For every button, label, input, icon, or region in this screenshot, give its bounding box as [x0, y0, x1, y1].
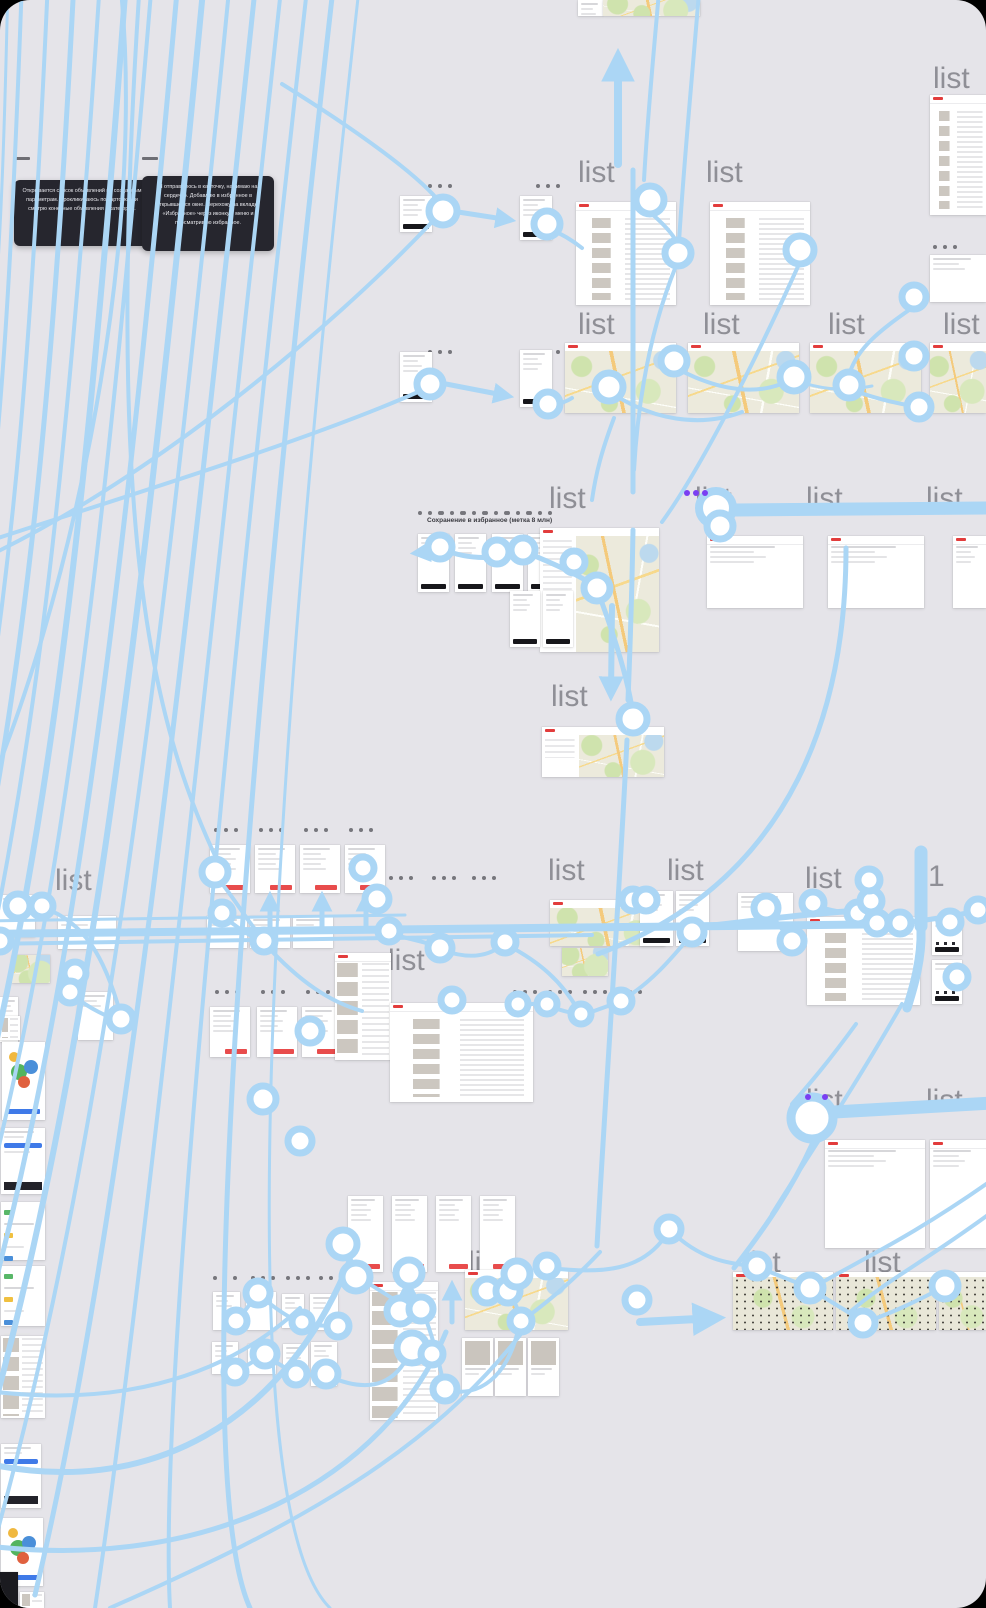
screen-card[interactable]	[250, 916, 290, 948]
screen-mobile-filter[interactable]	[210, 845, 250, 893]
screen-desktop-map[interactable]	[688, 343, 799, 413]
screen-map[interactable]	[603, 0, 700, 16]
screen-dark-thumb[interactable]	[0, 1572, 18, 1608]
flow-line	[670, 1230, 754, 1266]
ellipsis-marker	[389, 876, 413, 880]
flow-line	[549, 1006, 579, 1014]
flow-label[interactable]: list	[706, 158, 743, 188]
screen-mobile-mini[interactable]	[510, 591, 540, 647]
ellipsis-marker	[214, 828, 238, 832]
screen-form[interactable]	[1, 1444, 41, 1508]
screen-card[interactable]	[283, 1344, 308, 1374]
screen-desktop-item[interactable]	[953, 536, 986, 608]
screen-mobile-mini[interactable]	[520, 350, 552, 407]
ellipsis-marker	[583, 990, 607, 994]
flow-label[interactable]: 1	[928, 862, 945, 892]
screen-mobile-filter[interactable]	[392, 1196, 427, 1272]
screen-mobile-mini[interactable]	[492, 534, 523, 592]
screen-mobile-mini[interactable]	[418, 534, 449, 592]
flow-line	[592, 418, 614, 500]
screen-mobile-mini[interactable]	[400, 196, 432, 232]
favorites-caption[interactable]: Сохранение в избранное (метка 8 млн)	[427, 518, 552, 525]
flow-line	[644, 0, 660, 180]
flow-label[interactable]: list	[667, 856, 704, 886]
screen-mobile-listing[interactable]	[335, 953, 391, 1060]
ellipsis-marker	[213, 1276, 237, 1280]
flow-node	[902, 285, 926, 309]
ellipsis-marker	[251, 1276, 275, 1280]
ellipsis-marker	[618, 990, 642, 994]
screen-mobile-mini[interactable]	[676, 891, 709, 946]
flow-node	[571, 1004, 591, 1024]
screen-desktop-listing[interactable]	[710, 202, 810, 305]
ellipsis-marker	[349, 828, 373, 832]
screen-desktop-map[interactable]	[810, 343, 921, 413]
screen-desktop-listing[interactable]	[576, 202, 676, 305]
flow-label[interactable]: list	[933, 64, 970, 94]
ellipsis-marker	[306, 990, 330, 994]
screen-desktop-map[interactable]	[930, 343, 986, 413]
ellipsis-marker	[286, 1276, 310, 1280]
comment-dot[interactable]	[805, 1094, 811, 1100]
flow-node	[858, 869, 880, 891]
screen-card[interactable]	[282, 1294, 304, 1328]
flow-label[interactable]: list	[388, 946, 425, 976]
screen-desktop-map[interactable]	[565, 343, 676, 413]
screen-photo-card[interactable]	[495, 1338, 526, 1396]
screen-desktop-item[interactable]	[825, 1140, 925, 1248]
flow-line	[0, 0, 74, 910]
frame-dash-marker	[142, 157, 158, 160]
flow-node	[378, 920, 400, 942]
screen-card[interactable]	[58, 916, 116, 949]
flow-node	[967, 899, 986, 921]
flow-line	[0, 0, 22, 640]
screen-mobile-dialog[interactable]	[932, 917, 962, 955]
screen-list-colored[interactable]	[1, 1266, 45, 1326]
screen-mobile-filter[interactable]	[300, 845, 340, 893]
screen-photo-card[interactable]	[528, 1338, 559, 1396]
flow-line	[0, 0, 8, 420]
flow-label[interactable]: list	[578, 310, 615, 340]
screen-card[interactable]	[578, 0, 603, 16]
flow-node	[494, 931, 516, 953]
screen-card[interactable]	[0, 895, 35, 937]
flow-line	[679, 0, 700, 242]
flow-line	[71, 976, 76, 990]
flow-node	[802, 892, 824, 914]
ellipsis-marker	[536, 184, 560, 188]
flow-label[interactable]: list	[926, 484, 963, 514]
screen-mobile-mini[interactable]	[543, 591, 573, 647]
screen-mobile-mini[interactable]	[520, 196, 552, 240]
flow-label[interactable]: list	[703, 310, 740, 340]
screen-mobile-mini[interactable]	[400, 352, 432, 402]
figma-prototype-canvas[interactable]: listlistlistlistlistlistlistlistlistlist…	[0, 0, 986, 1608]
screen-mobile-filter[interactable]	[255, 845, 295, 893]
ellipsis-marker	[215, 990, 239, 994]
screen-mobile-filter[interactable]	[210, 1007, 250, 1057]
flow-node	[657, 1217, 681, 1241]
flow-label[interactable]: list	[926, 1086, 963, 1116]
screen-card[interactable]	[310, 1294, 338, 1330]
flow-label[interactable]: list	[695, 484, 732, 514]
flow-node	[428, 936, 452, 960]
flow-line	[127, 0, 218, 862]
ellipsis-marker	[506, 511, 530, 515]
screen-card[interactable]	[78, 992, 113, 1040]
ellipsis-marker	[418, 511, 442, 515]
comment-dot[interactable]	[822, 1094, 828, 1100]
screen-card[interactable]	[212, 1342, 238, 1374]
ellipsis-marker	[472, 876, 496, 880]
screen-mobile-dialog[interactable]	[932, 960, 962, 1004]
screen-map[interactable]	[562, 948, 608, 976]
screen-photo-card[interactable]	[462, 1338, 493, 1396]
annotation-note[interactable]: Я отправляюсь в карточку, нажимаю на сер…	[142, 176, 274, 251]
flow-line	[550, 1232, 668, 1271]
flow-label[interactable]: list	[806, 1086, 843, 1116]
frame-dash-marker	[14, 157, 30, 160]
flow-line	[0, 392, 418, 544]
ellipsis-marker	[513, 990, 537, 994]
comment-dot[interactable]	[693, 490, 699, 496]
screen-mobile-mini[interactable]	[640, 891, 673, 946]
comment-dot[interactable]	[684, 490, 690, 496]
screen-mascot[interactable]	[2, 1042, 45, 1120]
flow-line	[583, 1002, 619, 1015]
annotation-note[interactable]: Открывается список объявлений по созданн…	[14, 180, 150, 246]
screen-desktop-item[interactable]	[930, 1140, 986, 1248]
screen-mobile-listing[interactable]	[370, 1282, 438, 1420]
screen-card[interactable]	[293, 916, 333, 948]
flow-line	[446, 384, 508, 396]
screen-dense-map[interactable]	[836, 1272, 936, 1330]
ellipsis-marker	[304, 828, 328, 832]
screen-mobile-filter[interactable]	[348, 1196, 383, 1272]
screen-card[interactable]	[311, 1342, 337, 1386]
ellipsis-marker	[259, 828, 283, 832]
flow-label[interactable]: list	[549, 484, 586, 514]
flow-node	[625, 1288, 649, 1312]
screen-desktop-map[interactable]	[465, 1270, 568, 1330]
screen-photo-grid[interactable]	[1, 1336, 45, 1418]
flow-line	[834, 1103, 986, 1112]
screen-list-colored[interactable]	[1, 1202, 45, 1260]
flow-node	[288, 1129, 312, 1153]
flow-line	[0, 0, 48, 790]
screen-mobile-mini[interactable]	[455, 534, 486, 592]
ellipsis-marker	[484, 511, 508, 515]
screen-desktop-listing[interactable]	[930, 95, 986, 215]
flow-label[interactable]: list	[806, 484, 843, 514]
flow-label[interactable]: list	[551, 682, 588, 712]
screen-map[interactable]	[12, 955, 50, 983]
flow-node	[537, 994, 557, 1014]
screen-card[interactable]	[248, 1344, 276, 1374]
screen-dense-map[interactable]	[939, 1272, 986, 1330]
screen-mobile-filter[interactable]	[480, 1196, 515, 1272]
screen-form[interactable]	[1, 1128, 45, 1194]
ellipsis-marker	[319, 1276, 343, 1280]
flow-label[interactable]: list	[55, 866, 92, 896]
screen-card[interactable]	[738, 893, 793, 951]
screen-desktop-map-sidebar[interactable]	[542, 727, 664, 777]
screen-desktop-listing[interactable]	[807, 917, 920, 1005]
screen-card[interactable]	[246, 1292, 276, 1330]
screen-mobile-filter[interactable]	[257, 1007, 297, 1057]
ellipsis-marker	[440, 511, 464, 515]
screen-desktop-item[interactable]	[828, 536, 924, 608]
flow-line	[0, 222, 432, 560]
flow-node	[64, 962, 86, 984]
comment-dot[interactable]	[702, 490, 708, 496]
screen-mobile-filter[interactable]	[436, 1196, 471, 1272]
screen-card[interactable]	[213, 1292, 240, 1330]
ellipsis-marker	[432, 876, 456, 880]
screen-mobile-filter[interactable]	[345, 845, 385, 893]
flow-line	[0, 0, 126, 820]
flow-label[interactable]: list	[828, 310, 865, 340]
ellipsis-marker	[462, 511, 486, 515]
ellipsis-marker	[261, 990, 285, 994]
flow-line	[814, 905, 857, 913]
flow-line	[442, 944, 503, 956]
flow-label[interactable]: list	[805, 864, 842, 894]
screen-desktop-item[interactable]	[707, 536, 803, 608]
flow-line	[458, 212, 510, 220]
screen-photo-grid[interactable]	[0, 1016, 20, 1040]
flow-line	[282, 84, 438, 200]
screen-card[interactable]	[207, 916, 247, 948]
flow-node	[429, 197, 457, 225]
flow-label[interactable]: list	[548, 856, 585, 886]
ellipsis-marker	[933, 245, 957, 249]
flow-line	[640, 1318, 716, 1322]
flow-node	[250, 1086, 276, 1112]
screen-photo-grid[interactable]	[20, 1592, 44, 1608]
ellipsis-marker	[528, 511, 552, 515]
screen-card[interactable]	[930, 255, 986, 302]
flow-label[interactable]: list	[943, 310, 980, 340]
flow-node	[860, 890, 882, 912]
screen-desktop-listing[interactable]	[390, 1003, 533, 1102]
ellipsis-marker	[548, 990, 572, 994]
flow-label[interactable]: list	[578, 158, 615, 188]
ellipsis-marker	[428, 184, 452, 188]
screen-dense-map[interactable]	[733, 1272, 833, 1330]
